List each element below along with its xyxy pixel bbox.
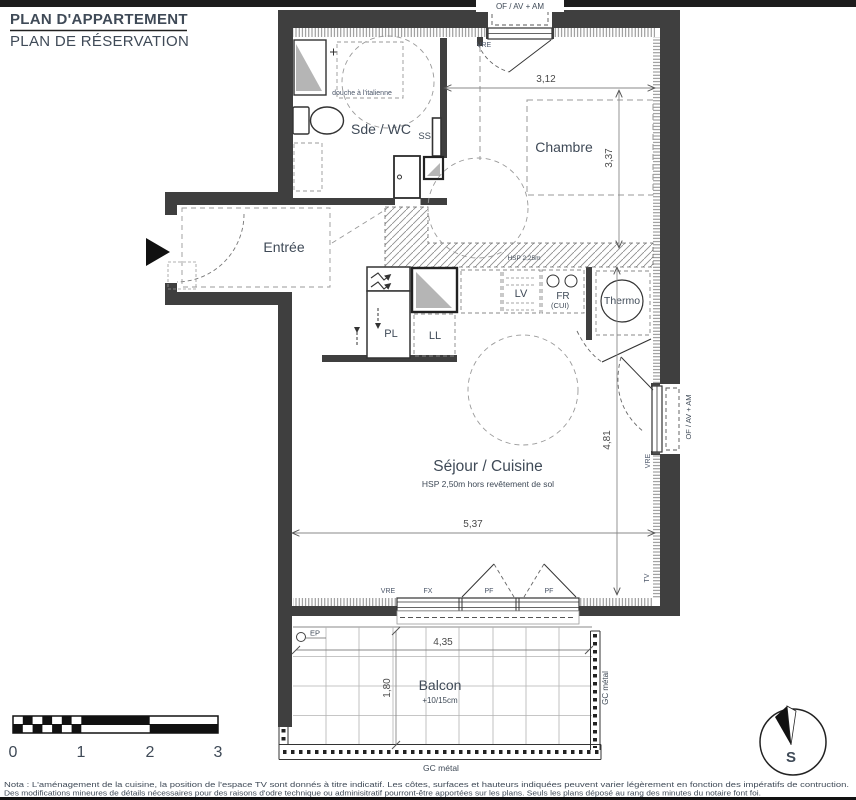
room-label-sejour: Séjour / Cuisine <box>433 458 542 475</box>
dim-chambre-height: 3,37 <box>604 148 615 168</box>
floor-plan-drawing: PLAN D'APPARTEMENT PLAN DE RÉSERVATION <box>0 0 856 800</box>
balcon-level-note: +10/15cm <box>422 696 458 705</box>
scale-tick-1: 1 <box>77 744 86 761</box>
dishwasher-label: LV <box>515 288 528 300</box>
soffit-height-label: HSP 2,25m <box>507 255 540 262</box>
bay-door-right-label: PF <box>545 588 554 595</box>
nota-line-2: Des modifications mineures de détails né… <box>4 789 761 798</box>
top-window-shutter-label: VRE <box>477 42 492 49</box>
room-label-entree: Entrée <box>263 239 304 255</box>
bay-shutter-label: VRE <box>381 588 396 595</box>
scale-tick-3: 3 <box>214 744 223 761</box>
scale-bar: 0 1 2 3 <box>9 716 223 761</box>
toilet-bowl <box>311 107 344 134</box>
railing-label-right: GC métal <box>601 671 610 705</box>
dim-sejour-width: 5,37 <box>463 519 483 530</box>
dim-sejour-height: 4,81 <box>602 430 613 450</box>
dim-balcon-depth: 1,80 <box>382 678 393 698</box>
washing-machine-label: LL <box>429 330 441 342</box>
kitchen: PL LL LV FR (CUI) <box>354 267 584 358</box>
bay-door-left-label: PF <box>485 588 494 595</box>
floor-plan-page: PLAN D'APPARTEMENT PLAN DE RÉSERVATION <box>0 0 856 800</box>
top-window: OF / AV + AM VRE <box>476 0 564 72</box>
balcony: EP 4,35 1,80 Balcon +10/15cm GC métal GC… <box>279 627 610 773</box>
closet-pl <box>367 291 410 358</box>
right-window-shutter-label: VRE <box>645 453 652 468</box>
sejour-height-note: HSP 2,50m hors revêtement de sol <box>422 479 554 489</box>
closet-label: PL <box>384 328 397 340</box>
sink-bowl-left <box>547 275 559 287</box>
bathroom: douche à l'italienne Sde / WC SS <box>293 36 443 205</box>
dim-balcon-width: 4,35 <box>433 637 453 648</box>
electrical-panel <box>367 267 410 291</box>
rainwater-pipe <box>297 633 306 642</box>
towel-radiator-label: SS <box>418 131 431 142</box>
railing-label-bottom: GC métal <box>423 763 459 773</box>
bay-fixed-label: FX <box>424 588 433 595</box>
page-subtitle: PLAN DE RÉSERVATION <box>10 33 189 50</box>
room-label-sde-wc: Sde / WC <box>351 121 411 137</box>
entrance: Entrée <box>146 208 385 289</box>
compass-south-label: S <box>786 749 796 766</box>
entree-zone-outline <box>182 208 330 287</box>
sink-bowl-right <box>565 275 577 287</box>
entrance-door-swing <box>177 214 244 282</box>
arrow-up-icon <box>354 327 360 333</box>
page-title: PLAN D'APPARTEMENT <box>10 11 188 28</box>
dim-chambre-width: 3,12 <box>536 74 556 85</box>
top-border-bar <box>0 0 856 7</box>
turning-circle-bathroom <box>342 36 434 128</box>
entrance-arrow-icon <box>146 238 170 266</box>
rainwater-pipe-label: EP <box>310 629 320 638</box>
cooker-label: (CUI) <box>551 301 569 310</box>
dimension-lines: 3,12 3,37 4,81 5,37 <box>293 74 654 594</box>
tv-location-label: TV <box>644 573 651 582</box>
top-window-label: OF / AV + AM <box>496 2 544 11</box>
room-label-chambre: Chambre <box>535 139 593 155</box>
turning-circle-living <box>468 335 578 445</box>
toilet-tank <box>293 107 309 134</box>
vanity-outline <box>294 143 322 191</box>
scale-tick-2: 2 <box>146 744 155 761</box>
compass: S <box>760 706 826 775</box>
towel-radiator <box>433 118 442 156</box>
room-label-balcon: Balcon <box>419 677 462 693</box>
bay-window-bottom: VRE FX PF PF <box>381 564 579 624</box>
title-block: PLAN D'APPARTEMENT PLAN DE RÉSERVATION <box>10 11 189 50</box>
shower-label: douche à l'italienne <box>332 90 392 97</box>
thermo-label: Thermo <box>604 295 640 307</box>
right-window-label: OF / AV + AM <box>684 394 693 439</box>
nota-block: Nota : L'aménagement de la cuisine, la p… <box>4 780 849 798</box>
scale-tick-0: 0 <box>9 744 18 761</box>
